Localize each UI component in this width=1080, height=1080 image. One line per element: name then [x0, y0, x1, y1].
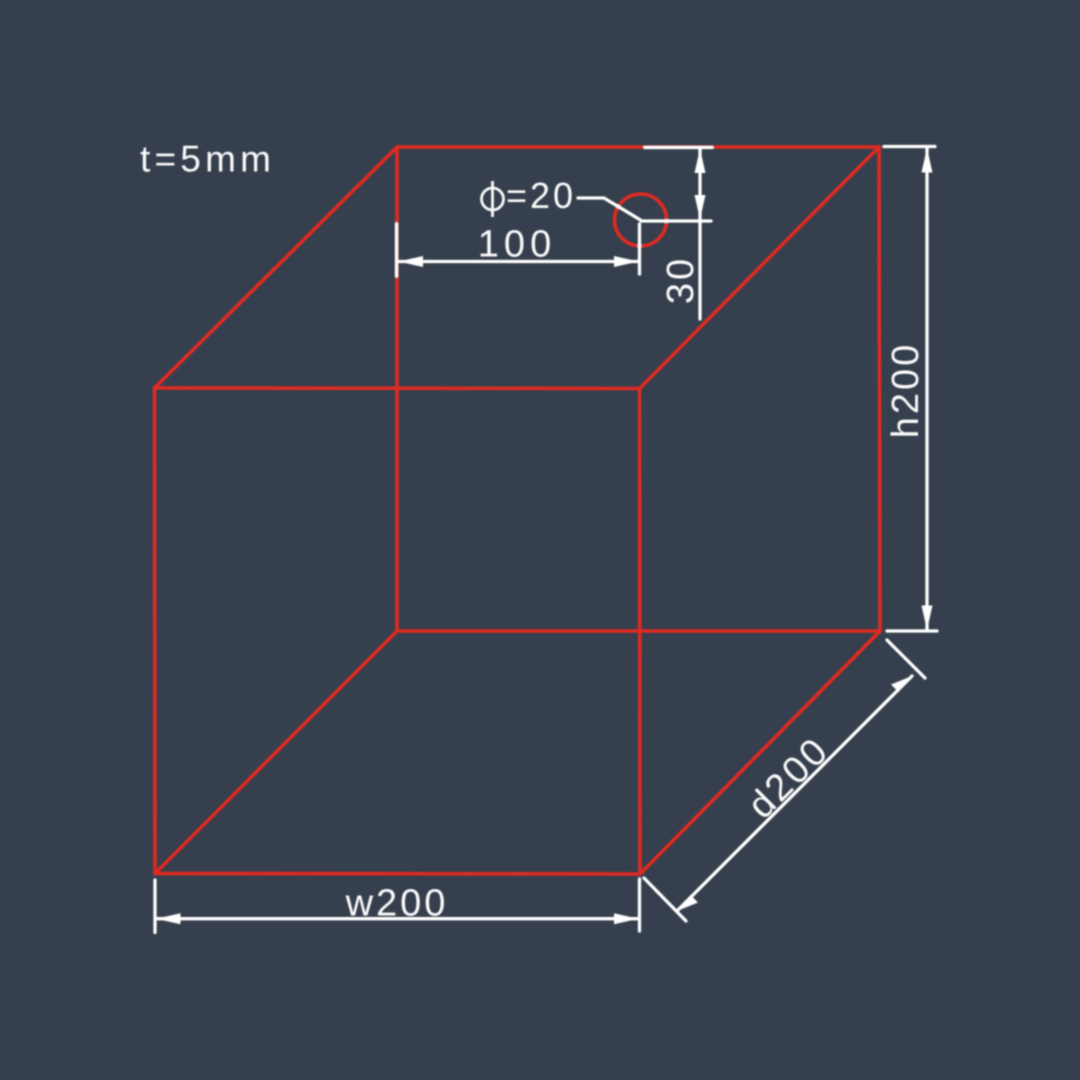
svg-text:t=5mm: t=5mm: [140, 139, 275, 180]
svg-text:h200: h200: [885, 342, 927, 439]
svg-text:w200: w200: [345, 883, 449, 925]
svg-text:d200: d200: [740, 729, 838, 827]
svg-text:100: 100: [478, 224, 556, 266]
svg-text:=20: =20: [506, 175, 576, 216]
svg-text:30: 30: [660, 256, 702, 304]
